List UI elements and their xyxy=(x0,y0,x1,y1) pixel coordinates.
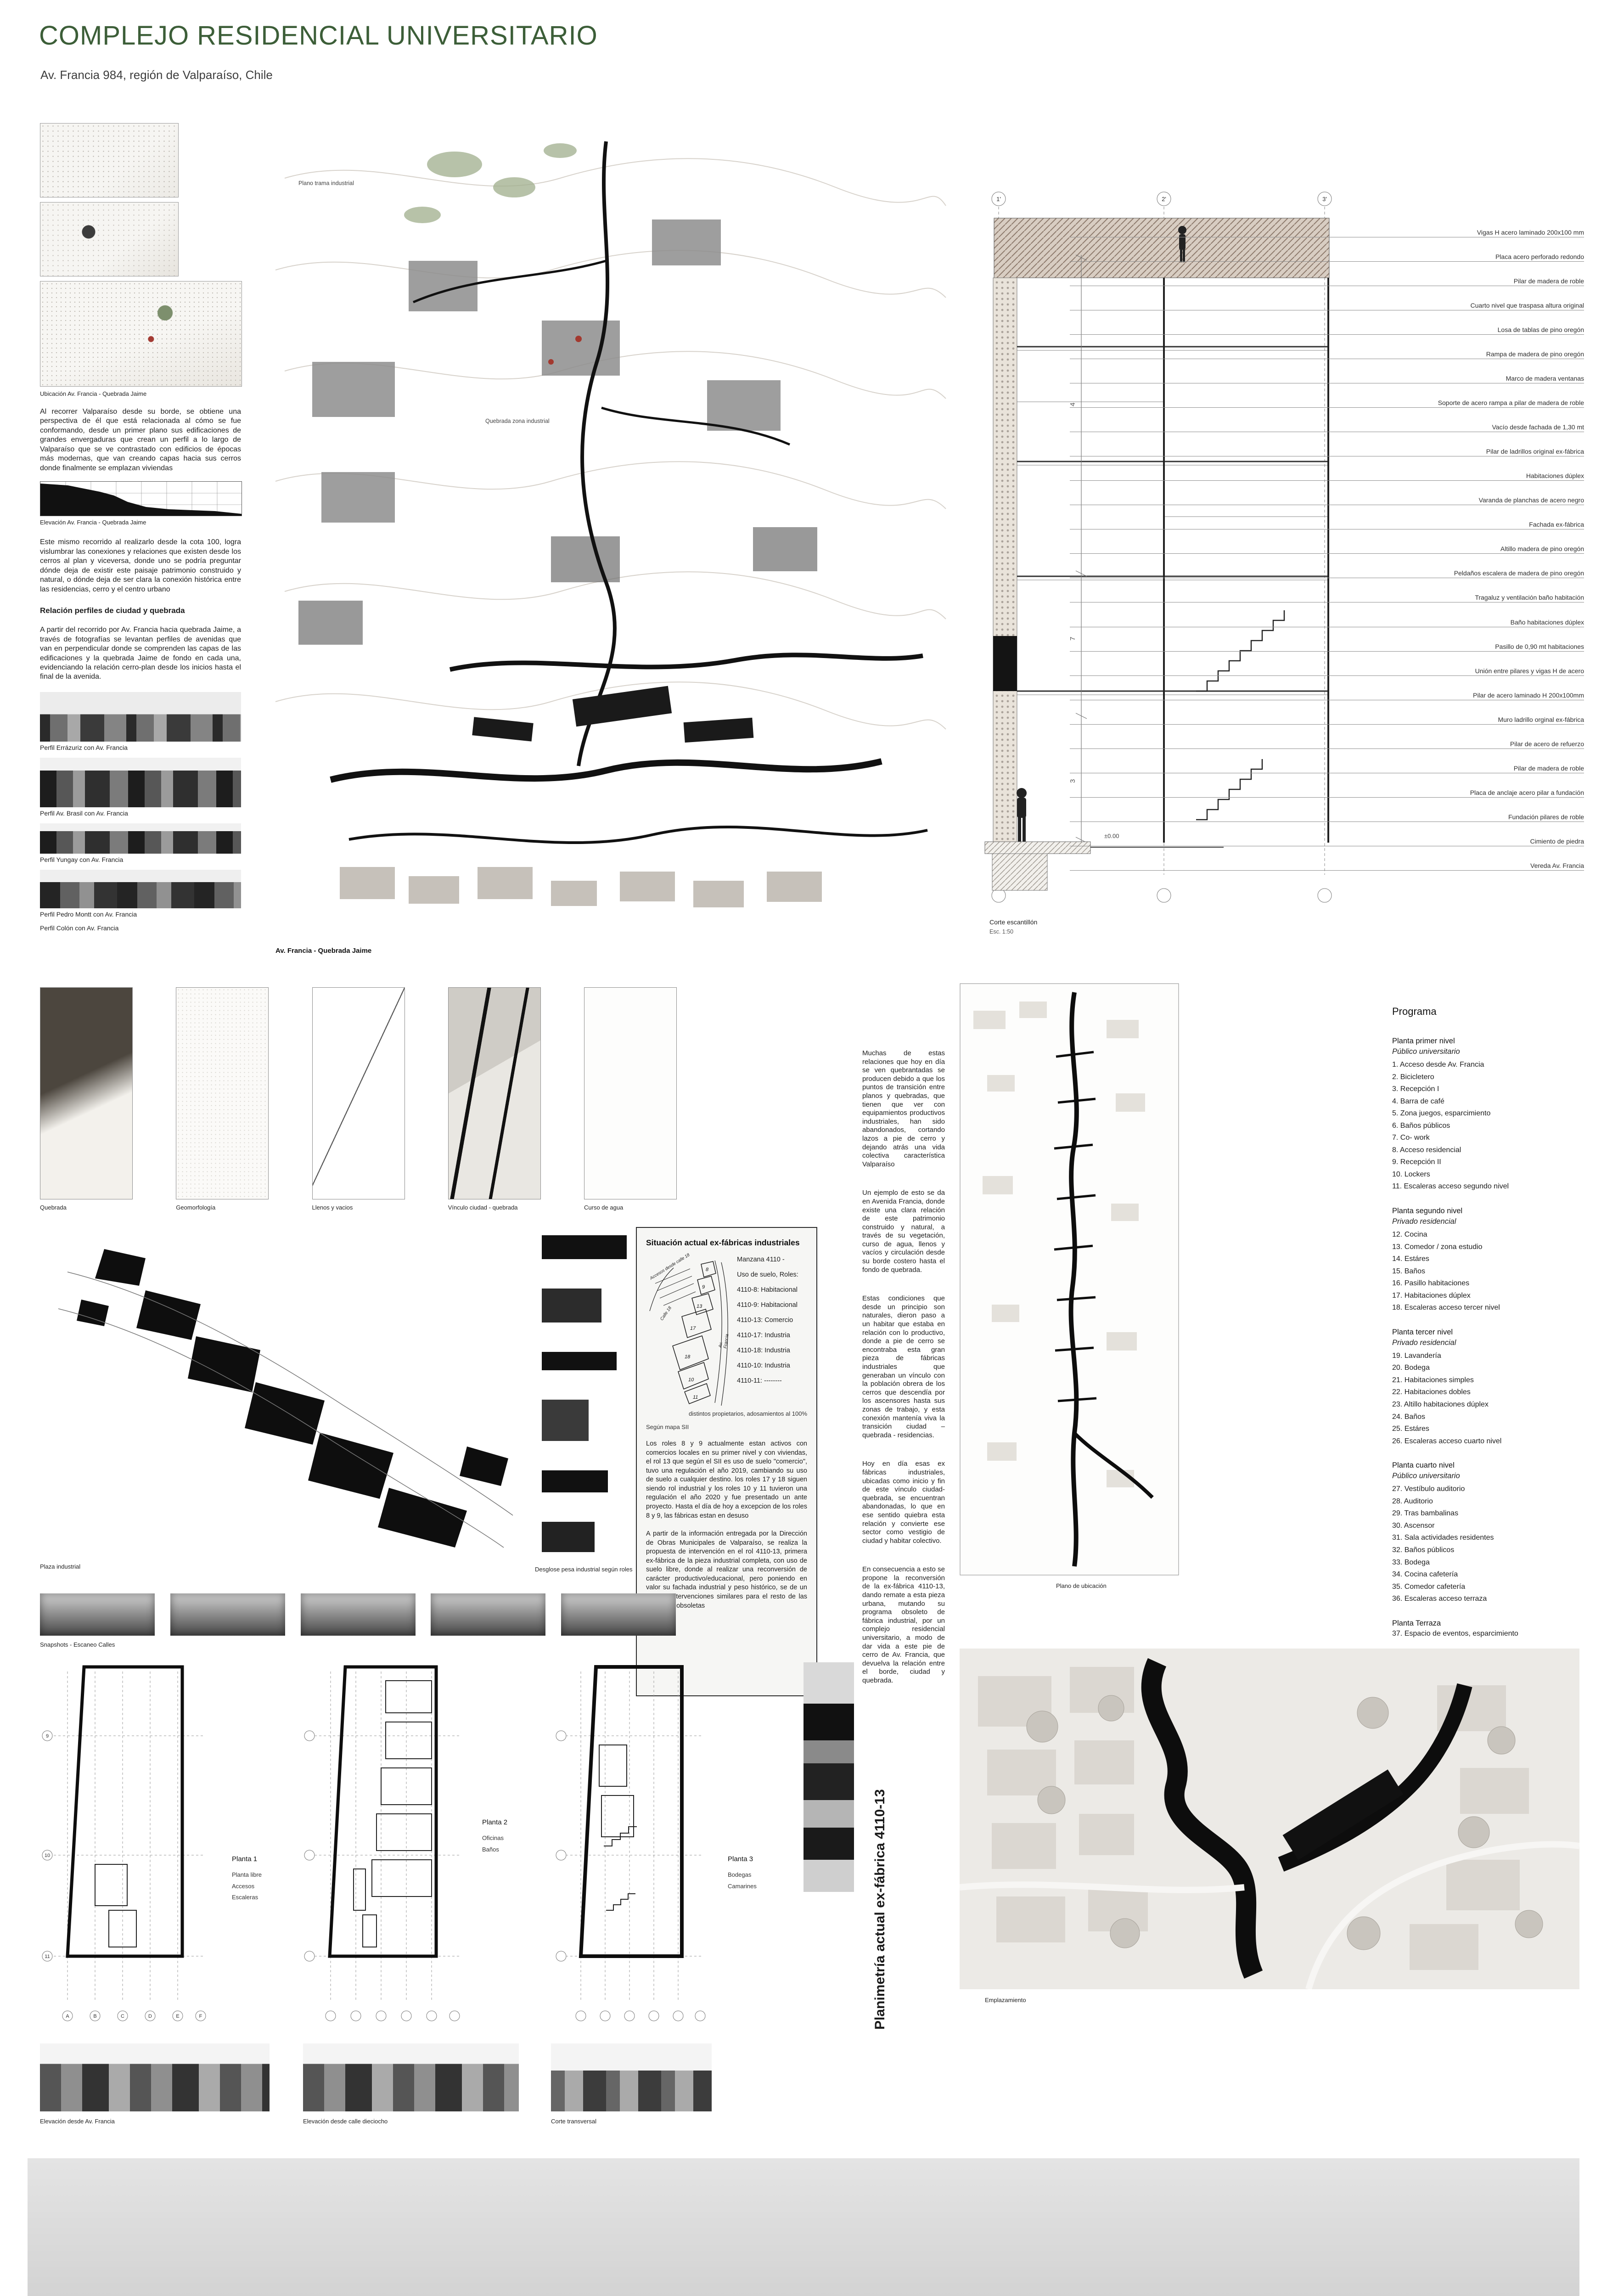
street-profile-caption: Perfil Pedro Montt con Av. Francia xyxy=(40,911,241,918)
parcel-number: 18 xyxy=(685,1354,690,1360)
parcel-number: 11 xyxy=(693,1395,698,1400)
plaza-industrial-map xyxy=(40,1231,527,1555)
programa-items: 37. Espacio de eventos, esparcimiento xyxy=(1392,1628,1590,1640)
analysis-strip-map xyxy=(176,987,269,1199)
section-annotation: Vereda Av. Francia xyxy=(1070,862,1584,871)
parcel-number: 17 xyxy=(690,1326,696,1331)
elevation-caption-2: Elevación desde calle dieciocho xyxy=(303,2118,388,2125)
programa-item: 5. Zona juegos, esparcimiento xyxy=(1392,1108,1590,1120)
collage-map-caption: Av. Francia - Quebrada Jaime xyxy=(275,947,371,955)
analysis-strip-caption: Curso de agua xyxy=(584,1204,676,1211)
street-profile-photo xyxy=(40,758,241,807)
programa-item: 35. Comedor cafetería xyxy=(1392,1581,1590,1593)
programa-item: 16. Pasillo habitaciones xyxy=(1392,1277,1590,1290)
programa-level-heading: Planta cuarto nivel xyxy=(1392,1461,1590,1470)
context-map-2 xyxy=(40,202,179,276)
street-photo xyxy=(561,1593,676,1636)
programa-item: 18. Escaleras acceso tercer nivel xyxy=(1392,1302,1590,1314)
street-profile: Perfil Pedro Montt con Av. Francia xyxy=(40,870,241,918)
perfiles-paragraph: A partir del recorrido por Av. Francia h… xyxy=(40,625,241,682)
programa-item: 1. Acceso desde Av. Francia xyxy=(1392,1059,1590,1071)
plan-grid-letter: A xyxy=(66,2014,69,2019)
left-column: Ubicación Av. Francia - Quebrada Jaime A… xyxy=(40,123,241,938)
programa-item: 26. Escaleras acceso cuarto nivel xyxy=(1392,1435,1590,1448)
roles-source: Según mapa SII xyxy=(646,1424,807,1430)
section-annotation: Pilar de ladrillos original ex-fábrica xyxy=(1070,448,1584,456)
plan-3-title: Planta 3 xyxy=(728,1855,806,1863)
parcel-number: 13 xyxy=(697,1304,702,1309)
programa-item: 36. Escaleras acceso terraza xyxy=(1392,1593,1590,1605)
section-annotation: Placa acero perforado redondo xyxy=(1070,253,1584,262)
role-item: 4110-11: -------- xyxy=(737,1377,798,1384)
section-annotation: Varanda de planchas de acero negro xyxy=(1070,496,1584,505)
plan-2-title: Planta 2 xyxy=(482,1818,560,1826)
roles-note: distintos propietarios, adosamientos al … xyxy=(646,1410,807,1417)
ubicacion-caption: Plano de ubicación xyxy=(1056,1582,1107,1589)
analysis-strip-map xyxy=(448,987,541,1199)
street-profile-caption: Perfil Colón con Av. Francia xyxy=(40,924,241,932)
programa-level-heading: Planta primer nivel xyxy=(1392,1037,1590,1046)
section-annotation: Tragaluz y ventilación baño habitación xyxy=(1070,594,1584,602)
street-profile-photo xyxy=(40,692,241,742)
programa-item: 11. Escaleras acceso segundo nivel xyxy=(1392,1181,1590,1193)
roles-breakdown-diagram xyxy=(542,1235,627,1552)
plan-grid-letter: F xyxy=(199,2014,202,2019)
programa-title: Programa xyxy=(1392,1006,1590,1018)
street-profile: Perfil Errázuriz con Av. Francia xyxy=(40,692,241,751)
plan-grid-letter: D xyxy=(148,2014,152,2019)
corte-transversal xyxy=(551,2043,712,2111)
street-profile-caption: Perfil Errázuriz con Av. Francia xyxy=(40,744,241,751)
role-bar xyxy=(542,1289,601,1322)
page-subtitle: Av. Francia 984, región de Valparaíso, C… xyxy=(40,68,273,82)
programa-item: 13. Comedor / zona estudio xyxy=(1392,1241,1590,1254)
section-annotation: Cuarto nivel que traspasa altura origina… xyxy=(1070,302,1584,310)
programa-panel: Programa Planta primer nivel Público uni… xyxy=(1392,1006,1590,1640)
analysis-strip-map xyxy=(40,987,133,1199)
programa-item: 27. Vestíbulo auditorio xyxy=(1392,1483,1590,1496)
section-annotation: Peldaños escalera de madera de pino oreg… xyxy=(1070,569,1584,578)
plan-1-item: Planta libre xyxy=(232,1869,310,1881)
role-bar xyxy=(542,1470,608,1492)
plan-grid-number: 11 xyxy=(45,1954,50,1959)
programa-item: 37. Espacio de eventos, esparcimiento xyxy=(1392,1628,1590,1640)
elevation-av-francia xyxy=(40,2043,270,2111)
role-bar xyxy=(542,1235,627,1259)
collage-map-label-quebrada: Quebrada zona industrial xyxy=(485,418,550,424)
analysis-strips: Quebrada Geomorfología Llenos y vacios V… xyxy=(40,987,676,1211)
manzana-label: Manzana 4110 - xyxy=(737,1256,798,1263)
intro-paragraph: Al recorrer Valparaíso desde su borde, s… xyxy=(40,407,241,473)
street-photo xyxy=(301,1593,416,1636)
analysis-strip: Quebrada xyxy=(40,987,132,1211)
analysis-strip-caption: Vínculo ciudad - quebrada xyxy=(448,1204,540,1211)
plan-grid-letter: B xyxy=(93,2014,96,2019)
programa-items: 27. Vestíbulo auditorio28. Auditorio29. … xyxy=(1392,1483,1590,1605)
street-profile-caption: Perfil Yungay con Av. Francia xyxy=(40,856,241,863)
street-photo xyxy=(431,1593,545,1636)
section-annotation: Losa de tablas de pino oregón xyxy=(1070,326,1584,335)
plan-grid-letter: C xyxy=(121,2014,124,2019)
context-map-1 xyxy=(40,123,179,197)
analysis-strip: Vínculo ciudad - quebrada xyxy=(448,987,540,1211)
programa-items: 12. Cocina13. Comedor / zona estudio14. … xyxy=(1392,1229,1590,1314)
middle-paragraph-4: Hoy en día esas ex fábricas industriales… xyxy=(862,1460,945,1545)
section-annotation: Marco de madera ventanas xyxy=(1070,375,1584,383)
elevation-profile-drawing xyxy=(40,481,242,516)
axis-label: 2' xyxy=(1162,196,1166,203)
role-item: 4110-17: Industria xyxy=(737,1332,798,1339)
section-annotation: Pilar de madera de roble xyxy=(1070,765,1584,773)
section-annotation: Rampa de madera de pino oregón xyxy=(1070,350,1584,359)
programa-item: 34. Cocina cafetería xyxy=(1392,1569,1590,1581)
analysis-strip-caption: Quebrada xyxy=(40,1204,132,1211)
programa-level-sub: Privado residencial xyxy=(1392,1217,1590,1226)
section-annotation: Baño habitaciones dúplex xyxy=(1070,619,1584,627)
parcel-sketch: Accesos desde calle 18 Calle 18 Av. Fran… xyxy=(646,1256,733,1407)
aerial-photo-svg xyxy=(28,2158,1579,2296)
plan-3-item: Camarines xyxy=(728,1881,806,1892)
section-annotation: Pilar de acero de refuerzo xyxy=(1070,740,1584,749)
aerial-photo: EAUV xyxy=(28,2158,1579,2296)
roles-list: Manzana 4110 - Uso de suelo, Roles: 4110… xyxy=(737,1256,798,1407)
analysis-strip: Llenos y vacios xyxy=(312,987,404,1211)
section-annotation: Habitaciones dúplex xyxy=(1070,472,1584,481)
industrial-fabric-collage-map xyxy=(257,123,955,941)
programa-item: 2. Bicicletero xyxy=(1392,1071,1590,1084)
programa-level-heading: Planta segundo nivel xyxy=(1392,1207,1590,1216)
programa-level-sub: Privado residencial xyxy=(1392,1339,1590,1347)
role-item: 4110-18: Industria xyxy=(737,1347,798,1354)
middle-paragraph-5: En consecuencia a esto se propone la rec… xyxy=(862,1565,945,1685)
section-annotation: Soporte de acero rampa a pilar de madera… xyxy=(1070,399,1584,408)
section-annotation: Unión entre pilares y vigas H de acero xyxy=(1070,667,1584,676)
section-annotation: Cimiento de piedra xyxy=(1070,838,1584,846)
programa-item: 6. Baños públicos xyxy=(1392,1120,1590,1132)
floor-plan-1: A B C D E F 9 10 11 xyxy=(40,1653,214,2033)
plaza-industrial-caption: Plaza industrial xyxy=(40,1563,80,1570)
elevation-caption-1: Elevación desde Av. Francia xyxy=(40,2118,115,2125)
programa-item: 25. Estáres xyxy=(1392,1423,1590,1435)
elevation-profile-svg xyxy=(40,482,242,516)
parcel-number: 8 xyxy=(706,1267,708,1272)
elevation-caption-3: Corte transversal xyxy=(551,2118,596,2125)
context-map-3 xyxy=(40,281,242,387)
page-title: COMPLEJO RESIDENCIAL UNIVERSITARIO xyxy=(39,20,598,51)
analysis-strip: Curso de agua xyxy=(584,987,676,1211)
street-photo xyxy=(170,1593,285,1636)
programa-item: 3. Recepción I xyxy=(1392,1083,1590,1096)
programa-item: 4. Barra de café xyxy=(1392,1096,1590,1108)
programa-item: 12. Cocina xyxy=(1392,1229,1590,1241)
perforated-facade xyxy=(993,278,1017,843)
programa-item: 33. Bodega xyxy=(1392,1557,1590,1569)
role-item: 4110-10: Industria xyxy=(737,1362,798,1369)
plan-1-item: Escaleras xyxy=(232,1892,310,1903)
programa-item: 20. Bodega xyxy=(1392,1362,1590,1374)
planimetria-vertical-label: Planimetría actual ex-fábrica 4110-13 xyxy=(872,1789,888,2030)
plan-3-label: Planta 3 BodegasCamarines xyxy=(728,1855,806,1892)
section-annotation: Pilar de acero laminado H 200x100mm xyxy=(1070,692,1584,700)
programa-items: 1. Acceso desde Av. Francia2. Bicicleter… xyxy=(1392,1059,1590,1193)
axis-label: 1' xyxy=(996,196,1001,203)
programa-level-sub: Público universitario xyxy=(1392,1047,1590,1056)
analysis-strip: Geomorfología xyxy=(176,987,268,1211)
street-profiles-list: Perfil Errázuriz con Av. Francia Perfil … xyxy=(40,692,241,932)
programa-item: 23. Altillo habitaciones dúplex xyxy=(1392,1399,1590,1411)
programa-item: 21. Habitaciones simples xyxy=(1392,1374,1590,1387)
programa-item: 10. Lockers xyxy=(1392,1169,1590,1181)
plan-2-label: Planta 2 OficinasBaños xyxy=(482,1818,560,1855)
street-profile-caption: Perfil Av. Brasil con Av. Francia xyxy=(40,810,241,817)
programa-item: 14. Estáres xyxy=(1392,1253,1590,1266)
section-annotation: Altillo madera de pino oregón xyxy=(1070,545,1584,554)
section-annotation: Vigas H acero laminado 200x100 mm xyxy=(1070,229,1584,237)
analysis-strip-map xyxy=(584,987,677,1199)
collage-map-label-trama: Plano trama industrial xyxy=(298,180,354,186)
plan-2-item: Oficinas xyxy=(482,1833,560,1844)
programa-item: 29. Tras bambalinas xyxy=(1392,1508,1590,1520)
middle-paragraph-3: Estas condiciones que desde un principio… xyxy=(862,1294,945,1440)
middle-text-column: Muchas de estas relaciones que hoy en dí… xyxy=(862,1049,945,1705)
street-photos-caption: Snapshots - Escaneo Calles xyxy=(40,1641,115,1648)
programa-items: 19. Lavandería20. Bodega21. Habitaciones… xyxy=(1392,1350,1590,1447)
section-annotation: Vacío desde fachada de 1,30 mt xyxy=(1070,423,1584,432)
programa-item: 8. Acceso residencial xyxy=(1392,1144,1590,1157)
facade-fragment xyxy=(803,1662,854,1892)
section-annotation: Fundación pilares de roble xyxy=(1070,813,1584,822)
programa-level-sub: Público universitario xyxy=(1392,1472,1590,1480)
street-profile-photo xyxy=(40,870,241,908)
street-photo xyxy=(40,1593,155,1636)
uso-label: Uso de suelo, Roles: xyxy=(737,1271,798,1278)
plan-3-item: Bodegas xyxy=(728,1869,806,1881)
programa-item: 28. Auditorio xyxy=(1392,1496,1590,1508)
plan-2-item: Baños xyxy=(482,1844,560,1856)
programa-item: 32. Baños públicos xyxy=(1392,1544,1590,1557)
middle-paragraph-1: Muchas de estas relaciones que hoy en dí… xyxy=(862,1049,945,1169)
plan-1-title: Planta 1 xyxy=(232,1855,310,1863)
programa-item: 31. Sala actividades residentes xyxy=(1392,1532,1590,1544)
cota100-paragraph: Este mismo recorrido al realizarlo desde… xyxy=(40,538,241,594)
section-annotation: Fachada ex-fábrica xyxy=(1070,521,1584,529)
section-annotations: Vigas H acero laminado 200x100 mm Placa … xyxy=(1070,229,1584,871)
section-scale: Esc. 1:50 xyxy=(989,929,1013,935)
floor-plan-3 xyxy=(556,1653,712,2033)
plan-1-item: Accesos xyxy=(232,1881,310,1892)
programa-item: 24. Baños xyxy=(1392,1411,1590,1424)
section-annotation: Placa de anclaje acero pilar a fundación xyxy=(1070,789,1584,798)
plan-grid-number: 10 xyxy=(45,1853,50,1858)
programa-item: 9. Recepción II xyxy=(1392,1156,1590,1169)
street-profile: Perfil Colón con Av. Francia xyxy=(40,924,241,932)
plan-grid-letter: E xyxy=(176,2014,179,2019)
floor-plan-2 xyxy=(303,1653,468,2033)
programa-level-heading: Planta tercer nivel xyxy=(1392,1328,1590,1337)
street-photos-row xyxy=(40,1593,676,1636)
street-profile-photo xyxy=(40,823,241,854)
street-profile: Perfil Yungay con Av. Francia xyxy=(40,823,241,863)
section-annotation: Muro ladrillo orginal ex-fábrica xyxy=(1070,716,1584,725)
programa-item: 17. Habitaciones dúplex xyxy=(1392,1290,1590,1302)
perfiles-heading: Relación perfiles de ciudad y quebrada xyxy=(40,606,241,615)
context-map-caption: Ubicación Av. Francia - Quebrada Jaime xyxy=(40,390,241,397)
middle-paragraph-2: Un ejemplo de esto se da en Avenida Fran… xyxy=(862,1189,945,1274)
programa-item: 30. Ascensor xyxy=(1392,1520,1590,1532)
foundation xyxy=(992,854,1047,890)
section-annotation: Pasillo de 0,90 mt habitaciones xyxy=(1070,643,1584,652)
analysis-strip-caption: Geomorfología xyxy=(176,1204,268,1211)
role-item: 4110-9: Habitacional xyxy=(737,1301,798,1309)
role-item: 4110-8: Habitacional xyxy=(737,1286,798,1294)
parcel-number: 10 xyxy=(688,1377,694,1383)
programa-level-heading: Planta Terraza xyxy=(1392,1619,1590,1628)
person-silhouette-street xyxy=(1017,788,1027,842)
role-bar xyxy=(542,1522,595,1552)
street-profile: Perfil Av. Brasil con Av. Francia xyxy=(40,758,241,817)
section-annotation: Pilar de madera de roble xyxy=(1070,277,1584,286)
analysis-strip-caption: Llenos y vacios xyxy=(312,1204,404,1211)
role-item: 4110-13: Comercio xyxy=(737,1317,798,1324)
emplazamiento-map xyxy=(960,1649,1579,1989)
programa-item: 19. Lavandería xyxy=(1392,1350,1590,1362)
section-caption: Corte escantillón xyxy=(989,918,1037,926)
programa-item: 22. Habitaciones dobles xyxy=(1392,1386,1590,1399)
programa-item: 7. Co- work xyxy=(1392,1132,1590,1144)
situacion-title: Situación actual ex-fábricas industriale… xyxy=(646,1238,807,1248)
elevation-profile-caption: Elevación Av. Francia - Quebrada Jaime xyxy=(40,519,241,526)
axis-label: 3' xyxy=(1322,196,1327,203)
role-bar xyxy=(542,1400,589,1441)
elevation-calle xyxy=(303,2043,519,2111)
plan-grid-number: 9 xyxy=(46,1733,49,1739)
situacion-paragraph-1: Los roles 8 y 9 actualmente estan activo… xyxy=(646,1440,807,1520)
programa-item: 15. Baños xyxy=(1392,1266,1590,1278)
analysis-strip-map xyxy=(312,987,405,1199)
collage-map-svg xyxy=(257,123,955,941)
ubicacion-map xyxy=(960,983,1179,1576)
parcel-number: 9 xyxy=(702,1284,705,1290)
emplazamiento-caption: Emplazamiento xyxy=(985,1997,1026,2003)
role-bar xyxy=(542,1352,617,1370)
plan-1-label: Planta 1 Planta libreAccesosEscaleras xyxy=(232,1855,310,1903)
